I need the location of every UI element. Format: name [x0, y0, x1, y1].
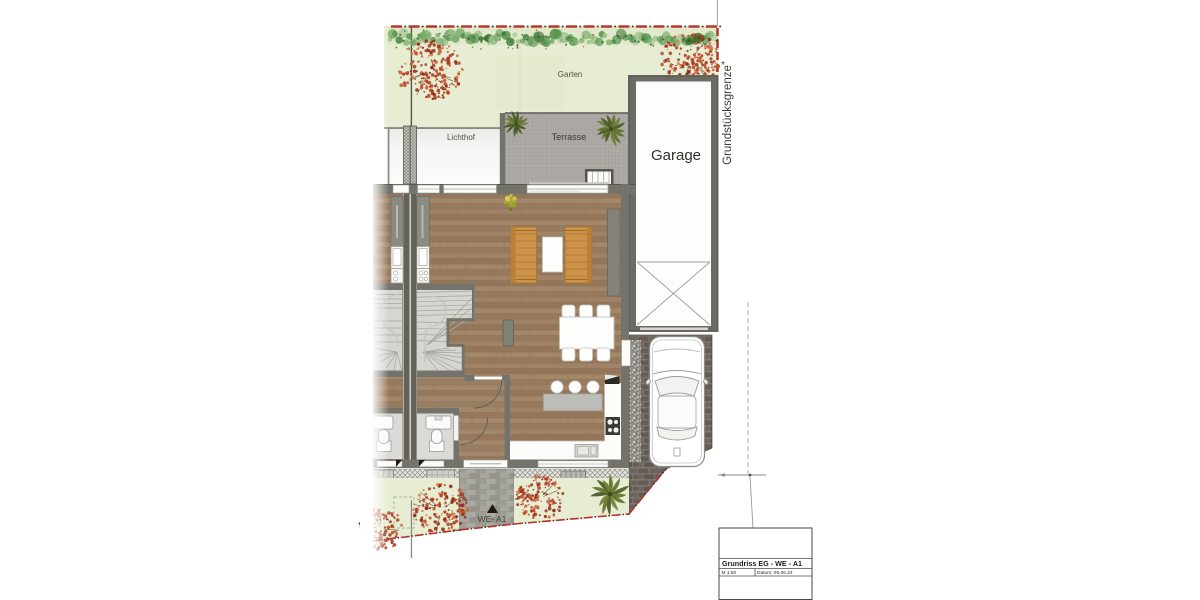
svg-text:Datum: 05.06.23: Datum: 05.06.23	[757, 570, 793, 576]
svg-text:Grundstücksgrenze: Grundstücksgrenze	[722, 65, 734, 165]
svg-text:Garage: Garage	[651, 147, 701, 164]
svg-text:Lichthof: Lichthof	[447, 133, 476, 142]
svg-text:*: *	[721, 60, 725, 71]
svg-text:M 1:50: M 1:50	[722, 570, 737, 576]
svg-text:Terrasse: Terrasse	[552, 132, 587, 142]
svg-text:WE- A1: WE- A1	[478, 514, 507, 524]
svg-text:Grundriss EG - WE - A1: Grundriss EG - WE - A1	[722, 559, 802, 568]
svg-text:Garten: Garten	[558, 70, 582, 79]
